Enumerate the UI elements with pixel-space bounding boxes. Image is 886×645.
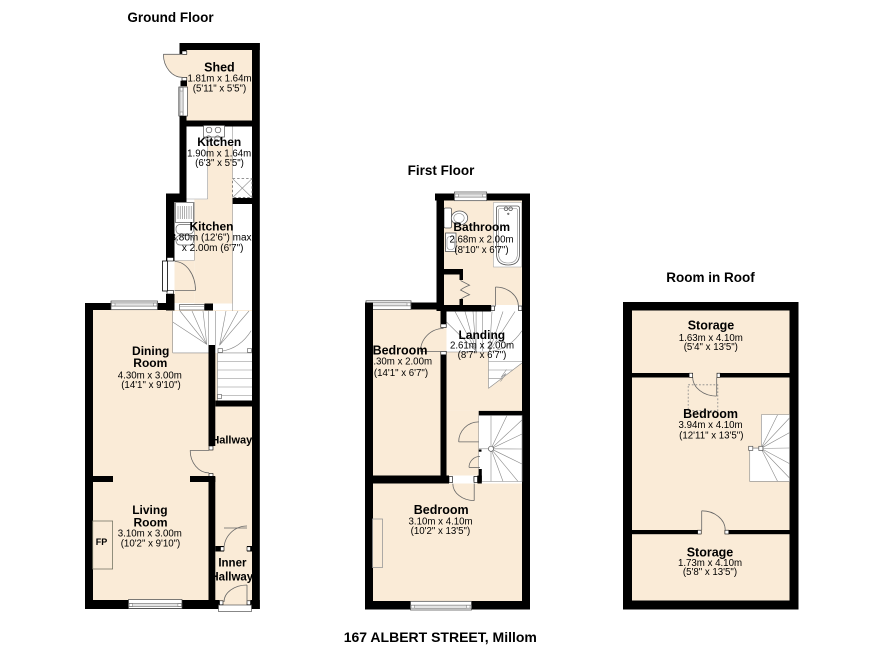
svg-text:Bedroom: Bedroom — [414, 503, 469, 517]
svg-text:Room in Roof: Room in Roof — [666, 270, 755, 285]
svg-text:(10'2" x 13'5"): (10'2" x 13'5") — [411, 526, 471, 537]
svg-text:2.68m x 2.00m: 2.68m x 2.00m — [449, 235, 513, 246]
svg-text:Room: Room — [134, 516, 168, 530]
svg-text:Room: Room — [133, 356, 167, 370]
svg-text:Ground Floor: Ground Floor — [127, 10, 214, 25]
svg-text:(8'7" x 6'7"): (8'7" x 6'7") — [458, 350, 507, 361]
svg-text:Kitchen: Kitchen — [197, 135, 241, 149]
svg-text:Hallway: Hallway — [211, 435, 253, 447]
svg-text:Inner: Inner — [218, 558, 247, 570]
svg-text:Shed: Shed — [204, 61, 235, 75]
svg-text:(14'1" x 6'7"): (14'1" x 6'7") — [374, 368, 428, 379]
svg-text:(5'4" x 13'5"): (5'4" x 13'5") — [684, 342, 738, 353]
svg-text:(14'1" x 9'10"): (14'1" x 9'10") — [121, 380, 181, 391]
svg-text:Bedroom: Bedroom — [373, 344, 428, 358]
svg-text:x 2.00m (6'7"): x 2.00m (6'7") — [182, 243, 244, 254]
svg-text:Storage: Storage — [688, 319, 735, 333]
svg-text:(5'8" x 13'5"): (5'8" x 13'5") — [683, 567, 737, 578]
svg-text:FP: FP — [96, 537, 108, 547]
svg-text:Kitchen: Kitchen — [189, 219, 233, 233]
svg-text:3.94m x 4.10m: 3.94m x 4.10m — [679, 420, 743, 431]
svg-text:167 ALBERT STREET, Millom: 167 ALBERT STREET, Millom — [344, 629, 537, 645]
svg-text:Bedroom: Bedroom — [683, 407, 738, 421]
svg-text:(6'3" x 5'5"): (6'3" x 5'5") — [195, 158, 244, 169]
svg-text:(8'10" x 6'7"): (8'10" x 6'7") — [454, 245, 508, 256]
svg-text:(5'11" x 5'5"): (5'11" x 5'5") — [193, 84, 246, 95]
svg-text:Hallway: Hallway — [210, 572, 253, 584]
svg-text:4.30m x 2.00m: 4.30m x 2.00m — [368, 357, 432, 368]
svg-text:Bathroom: Bathroom — [453, 220, 510, 234]
svg-text:(10'2" x 9'10"): (10'2" x 9'10") — [121, 538, 181, 549]
svg-text:First Floor: First Floor — [408, 163, 475, 178]
svg-text:(12'11" x 13'5"): (12'11" x 13'5") — [679, 431, 743, 442]
